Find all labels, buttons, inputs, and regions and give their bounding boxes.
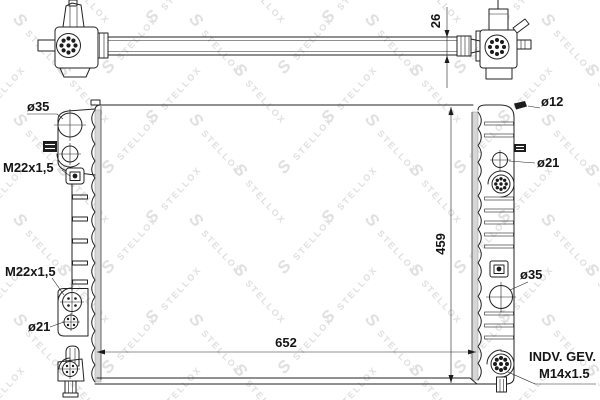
left-tank-ladder (72, 184, 88, 290)
top-view-left-tank (38, 0, 98, 77)
right-square-fitting (490, 261, 508, 277)
label-left-port-diameter: ø21 (28, 319, 50, 334)
right-tank (478, 101, 527, 392)
top-view: 26 (38, 0, 531, 88)
left-square-fitting (66, 168, 84, 184)
core-left-scallop-edge (92, 110, 95, 382)
core-right-scallop-edge (478, 112, 481, 380)
label-right-bleed-diameter: ø12 (541, 94, 563, 109)
left-small-port (62, 313, 80, 331)
label-note-line2: M14x1.5 (539, 366, 590, 381)
right-small-port (490, 150, 511, 171)
left-upper-thread-boss (57, 143, 81, 167)
left-hose-stub (43, 141, 57, 152)
drawing-canvas: 26 (0, 0, 600, 400)
depth-dim-text: 26 (428, 14, 443, 28)
right-bleed-stub (514, 101, 527, 110)
label-note-line1: INDV. GEV. (529, 349, 596, 364)
top-view-depth-dimension: 26 (428, 7, 450, 88)
right-side-stub (514, 144, 526, 152)
front-view-dimensions: 652 459 (97, 107, 476, 383)
top-view-core-bar (95, 31, 482, 61)
width-dim-text: 652 (275, 335, 297, 350)
right-outlet-port (486, 282, 516, 312)
label-left-thread-upper: M22x1,5 (3, 160, 54, 175)
height-dim-text: 459 (433, 233, 448, 255)
left-tank (43, 109, 95, 397)
label-left-inlet-diameter: ø35 (27, 99, 49, 114)
left-bottom-fitting (58, 358, 84, 397)
front-view: 652 459 ø35 M22x1,5 M22x1,5 ø21 ø12 (3, 94, 596, 397)
right-mid-bolt-fitting (488, 171, 514, 197)
radiator-technical-drawing: S STELLOXS STELLOXS STELLOXS STELLOXS ST… (0, 0, 600, 400)
label-right-port-diameter: ø21 (537, 155, 559, 170)
top-view-right-tank (480, 0, 531, 79)
right-bottom-bolt-fitting (487, 350, 514, 392)
label-left-thread-lower: M22x1,5 (5, 264, 56, 279)
label-right-outlet-diameter: ø35 (520, 267, 542, 282)
left-inlet-port (54, 109, 86, 141)
